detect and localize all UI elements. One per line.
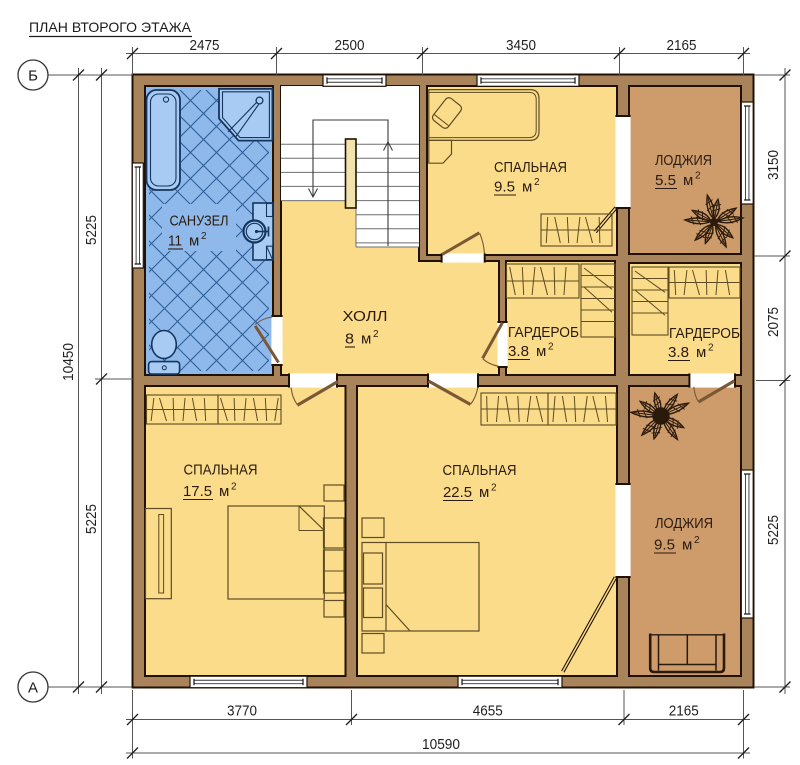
svg-text:м: м bbox=[479, 484, 489, 501]
svg-text:ГАРДЕРОБ: ГАРДЕРОБ bbox=[508, 324, 579, 341]
svg-text:2: 2 bbox=[708, 343, 714, 354]
svg-text:10590: 10590 bbox=[422, 737, 460, 753]
svg-text:5225: 5225 bbox=[766, 515, 782, 545]
svg-text:А: А bbox=[28, 680, 38, 697]
svg-text:9.5: 9.5 bbox=[494, 179, 515, 196]
svg-text:2165: 2165 bbox=[667, 38, 697, 54]
svg-text:м: м bbox=[682, 537, 692, 554]
svg-text:11: 11 bbox=[168, 233, 182, 250]
svg-text:4655: 4655 bbox=[473, 704, 503, 720]
svg-text:ЛОДЖИЯ: ЛОДЖИЯ bbox=[655, 152, 712, 169]
svg-text:СПАЛЬНАЯ: СПАЛЬНАЯ bbox=[443, 462, 517, 479]
svg-text:Б: Б bbox=[28, 68, 38, 85]
svg-text:2500: 2500 bbox=[335, 38, 365, 54]
svg-text:3450: 3450 bbox=[506, 38, 536, 54]
svg-text:САНУЗЕЛ: САНУЗЕЛ bbox=[170, 213, 229, 230]
svg-text:2075: 2075 bbox=[766, 307, 782, 337]
svg-text:3.8: 3.8 bbox=[668, 344, 689, 361]
svg-text:22.5: 22.5 bbox=[443, 484, 472, 501]
svg-text:м: м bbox=[536, 343, 546, 360]
svg-text:2: 2 bbox=[695, 171, 701, 182]
svg-text:м: м bbox=[219, 483, 229, 500]
svg-text:2: 2 bbox=[491, 483, 497, 494]
svg-text:2165: 2165 bbox=[669, 704, 699, 720]
svg-text:ПЛАН ВТОРОГО ЭТАЖА: ПЛАН ВТОРОГО ЭТАЖА bbox=[29, 19, 192, 35]
svg-text:2: 2 bbox=[548, 342, 554, 353]
svg-text:2475: 2475 bbox=[190, 38, 220, 54]
svg-text:9.5: 9.5 bbox=[654, 537, 675, 554]
svg-text:3770: 3770 bbox=[227, 704, 257, 720]
svg-text:2: 2 bbox=[373, 329, 379, 340]
svg-text:СПАЛЬНАЯ: СПАЛЬНАЯ bbox=[184, 462, 258, 479]
svg-text:5225: 5225 bbox=[84, 504, 100, 534]
svg-text:10450: 10450 bbox=[61, 343, 77, 381]
svg-text:5.5: 5.5 bbox=[655, 172, 676, 189]
svg-text:3150: 3150 bbox=[766, 150, 782, 180]
svg-text:2: 2 bbox=[201, 231, 207, 242]
svg-text:2: 2 bbox=[694, 535, 700, 546]
svg-text:5225: 5225 bbox=[84, 215, 100, 245]
svg-text:ГАРДЕРОБ: ГАРДЕРОБ bbox=[669, 325, 740, 342]
svg-text:м: м bbox=[189, 233, 199, 250]
svg-text:м: м bbox=[696, 344, 706, 361]
svg-text:2: 2 bbox=[534, 177, 540, 188]
svg-text:м: м bbox=[522, 179, 532, 196]
svg-text:м: м bbox=[361, 331, 371, 348]
svg-text:ХОЛЛ: ХОЛЛ bbox=[343, 308, 388, 325]
svg-text:8: 8 bbox=[345, 331, 354, 348]
svg-text:м: м bbox=[683, 172, 693, 189]
svg-text:17.5: 17.5 bbox=[183, 483, 212, 500]
svg-text:2: 2 bbox=[231, 482, 237, 493]
svg-text:ЛОДЖИЯ: ЛОДЖИЯ bbox=[655, 515, 713, 532]
svg-text:СПАЛЬНАЯ: СПАЛЬНАЯ bbox=[494, 159, 567, 176]
svg-text:3.8: 3.8 bbox=[508, 343, 529, 360]
